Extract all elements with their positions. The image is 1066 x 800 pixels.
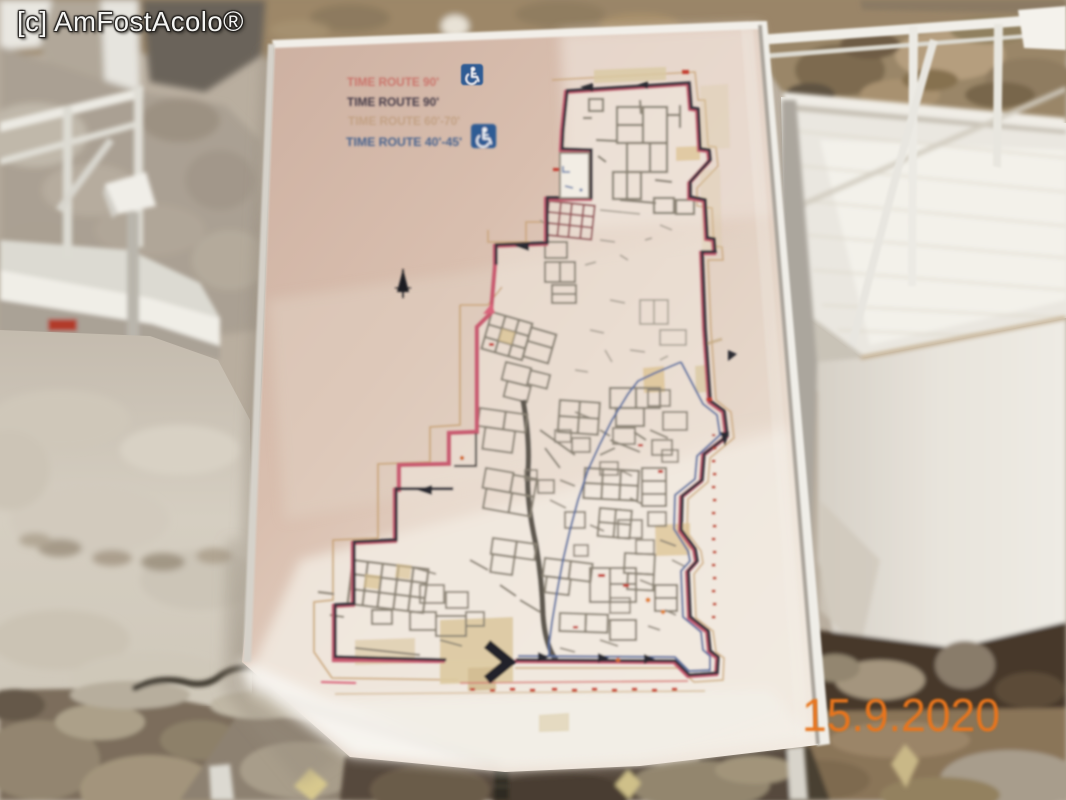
svg-text:TIME ROUTE 90': TIME ROUTE 90' [347, 97, 439, 109]
svg-text:TIME ROUTE 90': TIME ROUTE 90' [347, 77, 439, 89]
svg-text:TIME ROUTE 40'-45': TIME ROUTE 40'-45' [346, 137, 462, 149]
svg-text:TIME ROUTE 60'-70': TIME ROUTE 60'-70' [348, 116, 460, 128]
svg-text:15.9.2020: 15.9.2020 [802, 689, 1000, 741]
